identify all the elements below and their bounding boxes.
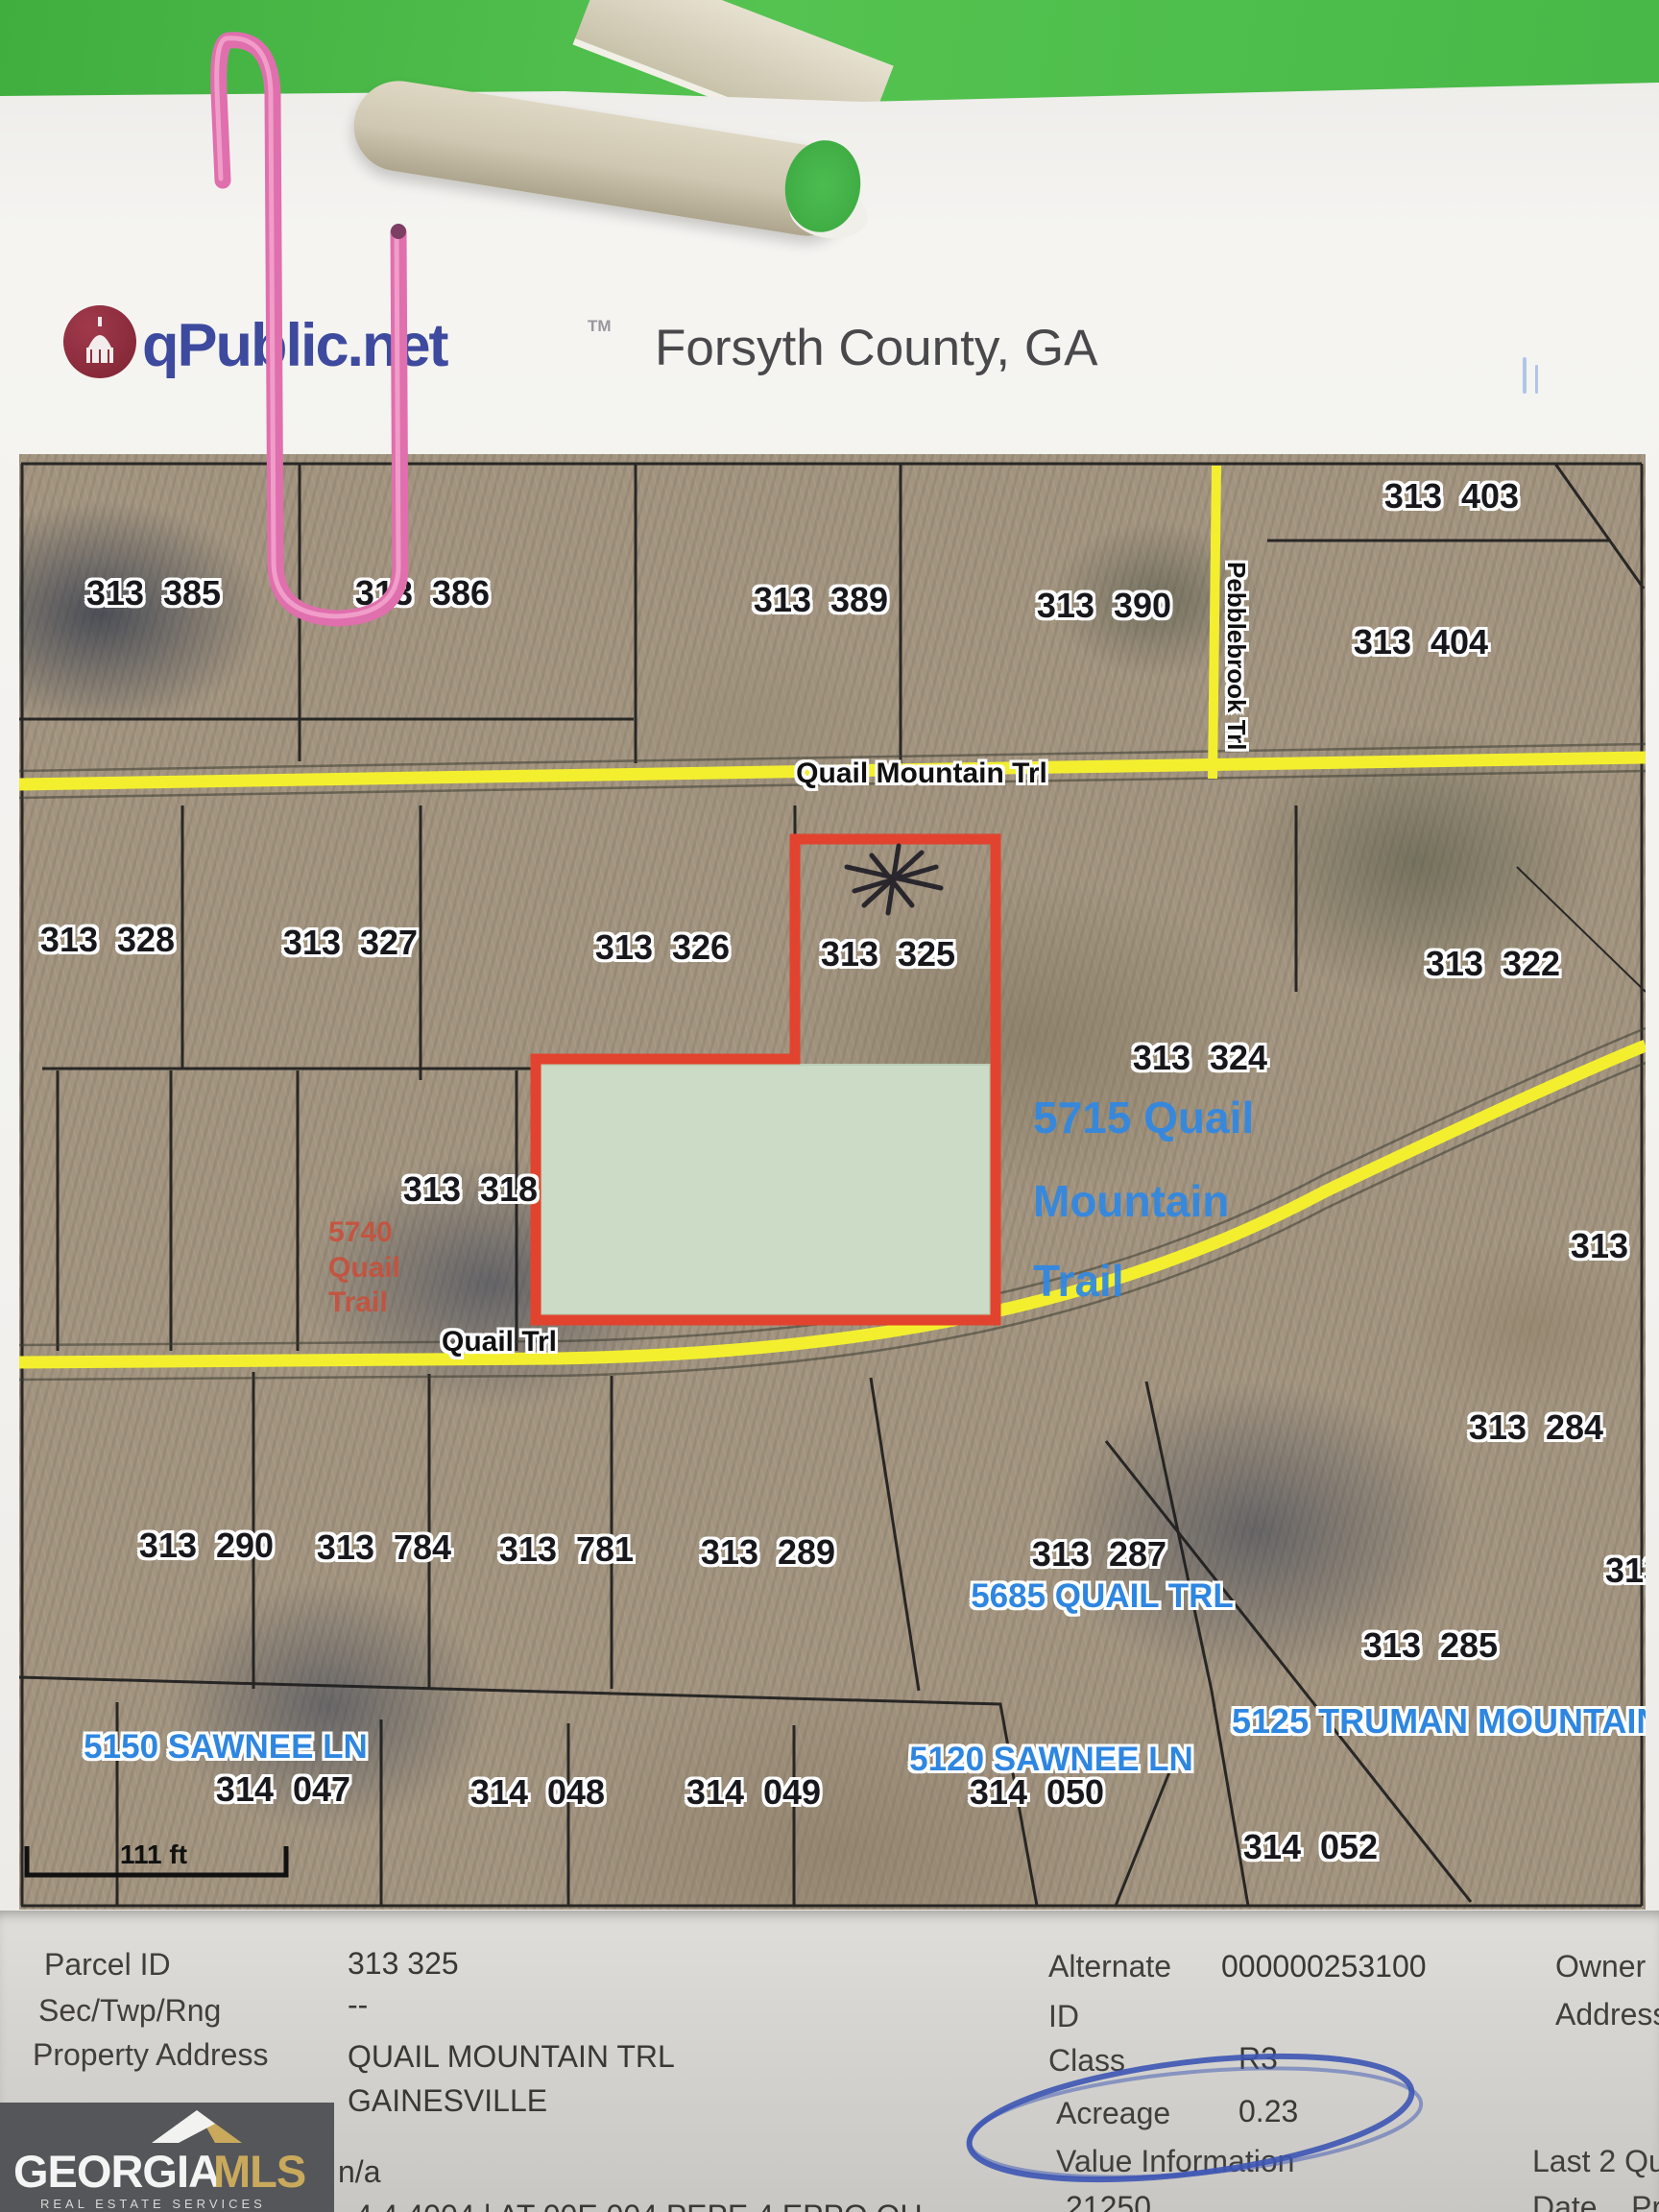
address-5715-line1: 5715 Quail: [1033, 1092, 1254, 1143]
parcel-label-313-318: 313 318: [403, 1169, 538, 1210]
tagline-text: REAL ESTATE SERVICES: [40, 2197, 266, 2211]
parcel-label-313-325: 313 325: [821, 934, 955, 974]
owner-label: Owner: [1555, 1949, 1646, 1984]
address-5740-line2: Quail: [328, 1252, 400, 1285]
address-5715-line3: Trail: [1033, 1255, 1124, 1307]
parcel-label-313-2-partial: 313 2: [1605, 1551, 1646, 1591]
pink-paperclip: [173, 19, 480, 672]
alternate-id-label-line1: Alternate: [1048, 1949, 1171, 1984]
parcel-label-314-047: 314 047: [216, 1769, 350, 1810]
parcel-label-313-287: 313 287: [1032, 1534, 1166, 1575]
parcel-id-label: Parcel ID: [44, 1947, 171, 1983]
trademark-mark: TM: [588, 317, 612, 336]
road-label-quail-mountain-trl: Quail Mountain Trl: [796, 757, 1047, 790]
parcel-label-314-048: 314 048: [470, 1772, 605, 1813]
pen-circle-annotation: [950, 2045, 1450, 2208]
address-5150-sawnee-ln: 5150 SAWNEE LN: [84, 1728, 368, 1767]
parcel-label-313-282: 313 282: [1571, 1226, 1646, 1266]
parcel-label-313-784: 313 784: [317, 1527, 451, 1568]
address-5740-line3: Trail: [328, 1286, 388, 1319]
pen-mark: [1523, 357, 1527, 394]
parcel-label-313-404: 313 404: [1354, 622, 1488, 662]
date-pr-label: Date Pr: [1532, 2190, 1659, 2212]
parcel-label-313-326: 313 326: [595, 927, 730, 968]
address-5125-truman-mountain: 5125 TRUMAN MOUNTAIN: [1232, 1701, 1646, 1742]
cropped-bottom-text: 4 4 4004 | AT 00E 004 PEPE 4 EPPO OU: [355, 2199, 923, 2212]
parcel-label-313-285: 313 285: [1363, 1625, 1498, 1666]
property-city-value: GAINESVILLE: [348, 2083, 547, 2119]
address-5120-sawnee-ln: 5120 SAWNEE LN: [909, 1741, 1193, 1779]
parcel-label-313-284: 313 284: [1469, 1407, 1603, 1448]
georgia-text: GEORGIA: [13, 2145, 220, 2198]
parcel-label-313-328: 313 328: [40, 920, 175, 960]
parcel-label-314-049: 314 049: [686, 1772, 821, 1813]
parcel-label-313-289: 313 289: [701, 1532, 835, 1573]
capitol-dome-icon: [63, 305, 136, 378]
star-sketch: [847, 846, 941, 913]
alternate-id-label-line2: ID: [1048, 1999, 1079, 2034]
parcel-label-313-389: 313 389: [754, 580, 888, 620]
parcel-label-313-327: 313 327: [283, 923, 418, 963]
parcel-label-313-403: 313 403: [1384, 476, 1519, 517]
scale-label: 111 ft: [120, 1839, 187, 1870]
parcel-label-314-052: 314 052: [1243, 1827, 1378, 1867]
parcel-label-313-781: 313 781: [499, 1529, 634, 1570]
parcel-label-313-322: 313 322: [1426, 944, 1560, 984]
parcel-label-313-324: 313 324: [1133, 1038, 1267, 1078]
map-overlay-graphics: [19, 454, 1646, 1910]
property-address-label: Property Address: [33, 2037, 268, 2073]
green-redaction-rectangle: [541, 1065, 990, 1314]
parcel-aerial-map: 313 385 313 386 313 389 313 390 313 403 …: [19, 454, 1646, 1910]
property-address-value: QUAIL MOUNTAIN TRL: [348, 2039, 675, 2075]
parcel-id-value: 313 325: [348, 1946, 459, 1982]
mls-text: MLS: [213, 2145, 305, 2198]
pen-mark: [1535, 365, 1538, 394]
address-5740-line1: 5740: [328, 1216, 393, 1249]
na-value: n/a: [338, 2154, 380, 2190]
sec-twp-rng-label: Sec/Twp/Rng: [38, 1993, 221, 2029]
parcel-label-313-390: 313 390: [1037, 586, 1171, 626]
road-label-pebblebrook-trl: Pebblebrook Trl: [1221, 562, 1251, 782]
parcel-label-313-290: 313 290: [139, 1526, 274, 1566]
last-2-qua-label: Last 2 Qua: [1532, 2144, 1659, 2179]
alternate-id-value: 000000253100: [1221, 1949, 1427, 1984]
qpublic-logo-icon: [63, 305, 136, 378]
road-label-quail-trl: Quail Trl: [442, 1326, 557, 1358]
sec-twp-rng-value: --: [348, 1987, 368, 2023]
address-5685-quail-trl: 5685 QUAIL TRL: [971, 1577, 1234, 1616]
georgia-mls-logo: GEORGIA MLS REAL ESTATE SERVICES: [0, 2103, 334, 2212]
owner-address-label: Address: [1555, 1997, 1659, 2032]
address-5715-line2: Mountain: [1033, 1175, 1229, 1227]
county-title: Forsyth County, GA: [655, 319, 1097, 377]
